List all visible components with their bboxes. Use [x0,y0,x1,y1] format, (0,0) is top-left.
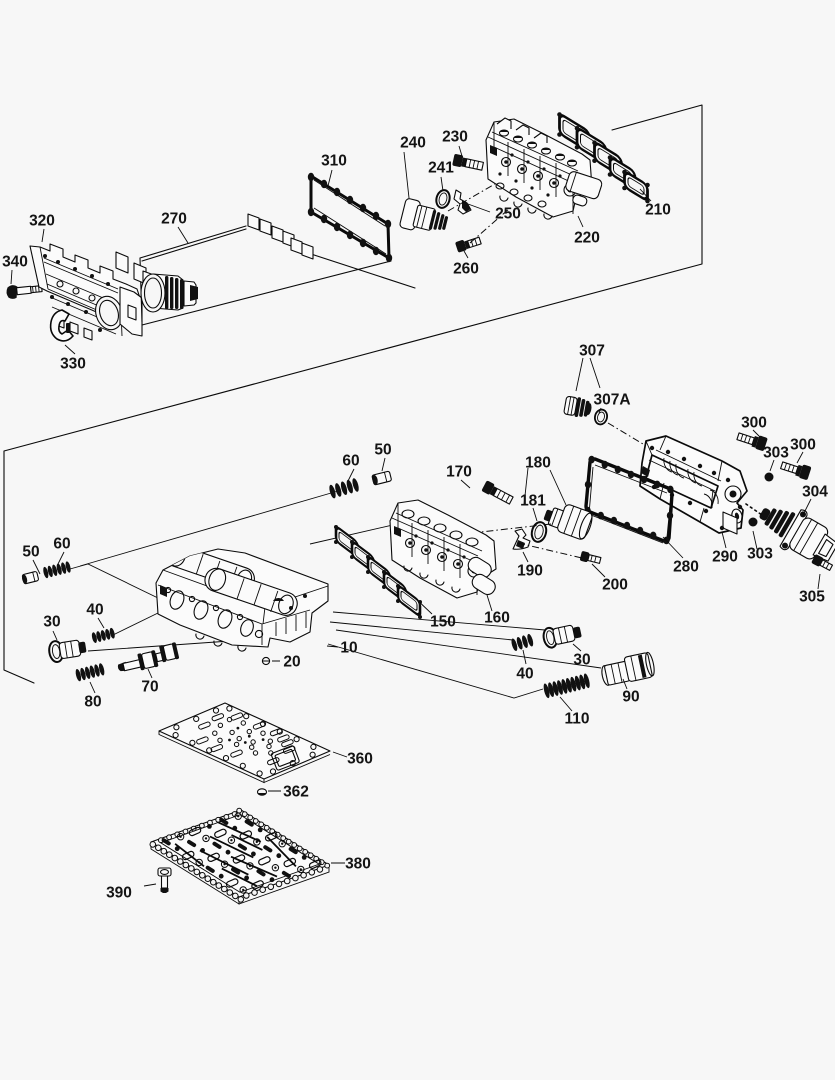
svg-text:170: 170 [446,464,472,481]
svg-text:210: 210 [645,202,671,219]
svg-text:110: 110 [564,711,589,728]
svg-text:307A: 307A [593,392,630,409]
svg-text:290: 290 [712,549,738,566]
svg-text:300: 300 [790,437,816,454]
svg-text:180: 180 [525,455,551,472]
svg-text:90: 90 [622,689,639,706]
svg-text:20: 20 [283,654,300,671]
svg-text:360: 360 [347,751,373,768]
svg-text:380: 380 [345,856,371,873]
svg-text:330: 330 [60,356,86,373]
svg-text:60: 60 [53,536,70,553]
svg-text:303: 303 [747,546,773,563]
svg-text:280: 280 [673,559,699,576]
svg-text:30: 30 [43,614,60,631]
svg-text:10: 10 [340,640,357,657]
svg-text:160: 160 [484,610,510,627]
svg-text:300: 300 [741,415,767,432]
svg-text:200: 200 [602,577,628,594]
svg-text:40: 40 [86,602,103,619]
svg-text:190: 190 [517,563,543,580]
svg-text:310: 310 [321,153,347,170]
svg-text:70: 70 [141,679,158,696]
svg-text:390: 390 [106,885,132,902]
svg-text:230: 230 [442,129,468,146]
svg-text:40: 40 [516,666,533,683]
svg-text:60: 60 [342,453,359,470]
svg-text:270: 270 [161,211,187,228]
svg-text:80: 80 [84,694,101,711]
svg-text:305: 305 [799,589,825,606]
svg-text:240: 240 [400,135,426,152]
svg-text:220: 220 [574,230,600,247]
svg-text:340: 340 [2,254,28,271]
svg-text:303: 303 [763,445,789,462]
svg-text:260: 260 [453,261,479,278]
svg-text:304: 304 [802,484,828,501]
svg-text:362: 362 [283,784,309,801]
svg-text:30: 30 [573,652,590,669]
svg-text:320: 320 [29,213,55,230]
svg-text:307: 307 [579,343,605,360]
svg-text:181: 181 [520,493,546,510]
svg-text:150: 150 [430,614,456,631]
svg-text:50: 50 [22,544,39,561]
svg-text:250: 250 [495,206,521,223]
svg-text:241: 241 [428,160,454,177]
svg-text:50: 50 [374,442,391,459]
